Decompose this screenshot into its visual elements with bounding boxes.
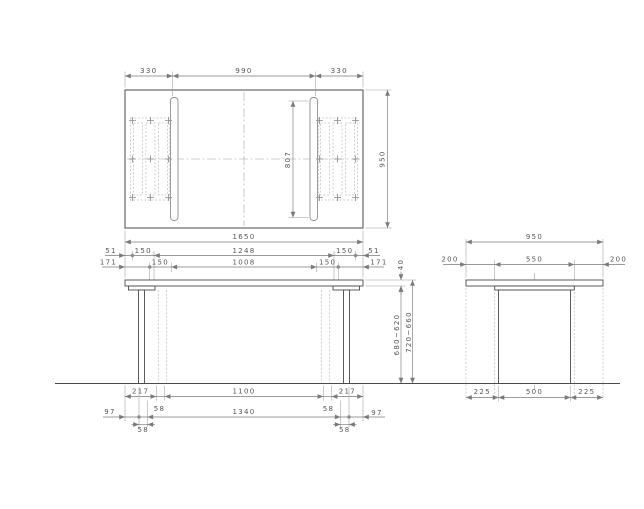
dim-front-b3-left: 58 <box>137 426 149 434</box>
dim-depth-950: 950 <box>379 150 387 167</box>
leg-panel-side <box>499 290 571 384</box>
drawing-canvas: 330 990 330 950 807 1650 <box>0 0 644 509</box>
dim-front-r2-1: 150 <box>152 259 169 267</box>
centerlines-plan <box>127 92 361 226</box>
dim-front-b2-4: 97 <box>371 409 383 417</box>
dim-height-under: 680~620 <box>393 314 401 356</box>
dim-front-b2-1: 58 <box>154 405 166 413</box>
leg-left-front <box>139 290 145 384</box>
dim-front-b1-1: 1100 <box>232 388 255 396</box>
dim-front-r1-4: 51 <box>368 247 380 255</box>
dim-front-r1-1: 150 <box>135 247 152 255</box>
dim-front-b3-right: 58 <box>339 426 351 434</box>
tabletop-side <box>466 280 603 286</box>
dim-leg-length-807: 807 <box>284 151 292 168</box>
dim-top-span-center: 990 <box>235 67 252 75</box>
mount-plate-left-front <box>129 286 156 290</box>
dim-side-b-1: 500 <box>526 388 543 396</box>
bolt-cross-markers-left <box>129 117 172 201</box>
dim-side-b-0: 225 <box>474 388 491 396</box>
top-view: 330 990 330 950 807 <box>125 67 392 228</box>
dim-front-heights: 40 680~620 720~660 <box>366 259 417 384</box>
bolt-cross-markers-right <box>316 117 359 201</box>
dim-top-thickness-40: 40 <box>397 259 405 271</box>
dim-top-width-row: 330 990 330 <box>125 67 363 96</box>
dim-front-r1-2: 1248 <box>232 247 255 255</box>
dim-side-depth-950: 950 <box>526 233 543 241</box>
dim-height-overall: 720~660 <box>405 311 413 353</box>
dim-side-b-2: 225 <box>578 388 595 396</box>
tabletop-front <box>125 280 363 286</box>
dim-front-r2-3: 150 <box>319 259 336 267</box>
dim-front-b1-0: 217 <box>132 388 149 396</box>
front-view: 51 150 1248 150 51 171 150 1008 150 171 <box>100 247 417 434</box>
dim-front-b2-0: 97 <box>104 408 116 416</box>
dim-side-bottom-row: 225 500 225 <box>466 386 603 402</box>
side-view: 950 200 550 200 225 500 225 <box>441 233 627 402</box>
dim-front-r1-3: 150 <box>336 247 353 255</box>
bracket-left-plan <box>129 117 172 201</box>
dim-front-r2-2: 1008 <box>232 259 255 267</box>
dim-front-r2-4: 171 <box>370 259 387 267</box>
dim-side-t-1: 550 <box>526 256 543 264</box>
dim-front-b2-2: 1340 <box>232 408 255 416</box>
leg-right-front <box>344 290 350 384</box>
dim-side-t-0: 200 <box>441 256 458 264</box>
dim-front-b1-2: 217 <box>339 388 356 396</box>
dim-top-overhang-left: 330 <box>140 67 157 75</box>
dim-front-r2-0: 171 <box>100 259 117 267</box>
dim-top-overhang-right: 330 <box>331 67 348 75</box>
dim-plan-depth: 950 <box>366 90 392 228</box>
mount-plate-right-front <box>333 286 360 290</box>
dim-side-t-2: 200 <box>610 256 627 264</box>
dim-front-r1-0: 51 <box>105 247 117 255</box>
cad-drawing: 330 990 330 950 807 1650 <box>0 0 644 509</box>
hidden-bracket-lines-front <box>158 290 329 384</box>
bracket-right-plan <box>316 117 359 201</box>
dim-total-width-1650: 1650 <box>232 233 255 241</box>
dim-front-bottom3: 58 58 <box>132 425 357 435</box>
mount-plate-side <box>495 286 575 290</box>
dim-front-b2-3: 58 <box>323 405 335 413</box>
